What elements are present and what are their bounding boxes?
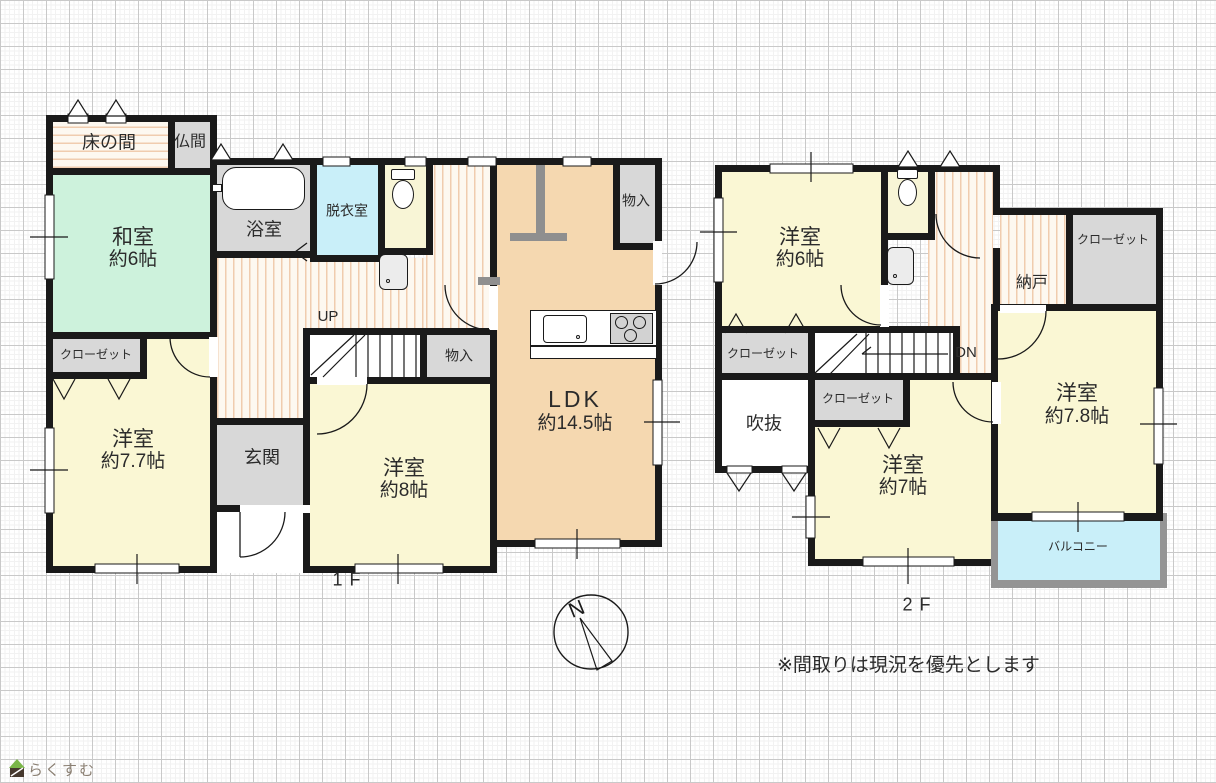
label-bathroom: 浴室 (246, 221, 282, 240)
floor-label-2f: 2F (902, 596, 937, 615)
washbasin-drain-2f (893, 274, 897, 278)
label-stairs-down: DN (955, 345, 977, 361)
label-closet-2f-right: クローゼット (1077, 234, 1149, 247)
sink-drain-dot (576, 335, 580, 339)
label-dressing-room: 脱衣室 (326, 204, 368, 219)
hanger-mark (727, 473, 751, 491)
entrance-porch (217, 512, 310, 573)
label-genkan: 玄関 (244, 449, 280, 468)
label-yoshitsu6-name: 洋室 (779, 227, 821, 249)
label-yoshitsu6-size: 約6帖 (776, 250, 825, 270)
wall-stub (993, 248, 1000, 311)
label-yoshitsu78-name: 洋室 (1056, 383, 1098, 405)
label-yoshitsu7-name: 洋室 (882, 455, 924, 477)
label-fukinuke: 吹抜 (746, 415, 782, 434)
ldk-wall-stub (478, 277, 500, 285)
label-closet-2f-left: クローゼット (727, 348, 799, 361)
label-yoshitsu8-size: 約8帖 (380, 481, 429, 501)
logo-text: らくすむ (28, 759, 96, 780)
hallway-1f-right (426, 165, 490, 335)
label-yoshitsu7-size: 約7帖 (879, 478, 928, 498)
closet-2f-right (1066, 208, 1163, 311)
label-stairs-up: UP (318, 309, 339, 325)
toilet-icon-2f-bowl (898, 179, 917, 206)
wall-stub (991, 513, 1163, 521)
label-closet-2f-mid: クローゼット (822, 393, 894, 406)
label-yoshitsu77-size: 約7.7帖 (101, 452, 165, 472)
kitchen-counter-line (531, 345, 656, 347)
label-yoshitsu78-size: 約7.8帖 (1045, 407, 1109, 427)
compass-needle (580, 618, 612, 670)
compass: N (554, 595, 628, 670)
label-washitsu-name: 和室 (112, 227, 154, 249)
label-balcony: バルコニー (1048, 541, 1108, 554)
stairs-2f (808, 326, 960, 380)
hanger-mark (782, 473, 806, 491)
label-butsuma: 仏間 (174, 135, 206, 152)
hallway-1f-vertical (217, 252, 310, 430)
wall-stub (210, 505, 217, 573)
wall-stub (426, 158, 497, 165)
label-storage-ldk: 物入 (622, 194, 650, 209)
label-yoshitsu77-name: 洋室 (112, 429, 154, 451)
floor-label-1f: 1F (332, 571, 367, 590)
wall-stub (993, 208, 1073, 215)
wall-stub (993, 304, 1073, 311)
disclaimer-note: ※間取りは現況を優先とします (777, 650, 1040, 677)
stove-burner-icon (633, 316, 646, 329)
toilet-icon-2f-tank (897, 169, 918, 179)
compass-circle (554, 595, 628, 669)
label-washitsu-size: 約6帖 (109, 250, 158, 270)
vent-triangle (68, 100, 88, 116)
floorplan-canvas: N 床の間 仏間 和室 約6帖 浴室 脱衣室 クローゼット 洋室 約7.7帖 玄… (0, 0, 1216, 783)
compass-north-label: N (565, 596, 588, 623)
ldk-divider-vertical (536, 165, 545, 240)
logo-house-icon (9, 759, 25, 777)
bath-faucet-icon (212, 184, 222, 192)
label-ldk-name: LDK (548, 387, 602, 411)
label-storage-stairs: 物入 (445, 349, 473, 364)
label-nando: 納戸 (1016, 276, 1048, 293)
label-closet-1f: クローゼット (60, 349, 132, 362)
stove-burner-icon (615, 316, 628, 329)
toilet-icon-1f-tank (391, 169, 415, 180)
label-yoshitsu8-name: 洋室 (383, 458, 425, 480)
washbasin-drain-1f (386, 279, 390, 283)
stairs-1f (303, 328, 427, 384)
ldk-divider-horizontal (510, 233, 567, 241)
washbasin-icon-2f (887, 247, 914, 285)
kitchen-sink-icon (543, 315, 587, 343)
vent-triangle (106, 100, 126, 116)
washbasin-icon-1f (379, 254, 408, 290)
label-tokonoma: 床の間 (82, 134, 136, 153)
stove-burner-icon (624, 329, 637, 342)
toilet-icon-1f-bowl (392, 180, 414, 209)
bathtub-icon (222, 167, 305, 210)
label-ldk-size: 約14.5帖 (538, 414, 613, 434)
